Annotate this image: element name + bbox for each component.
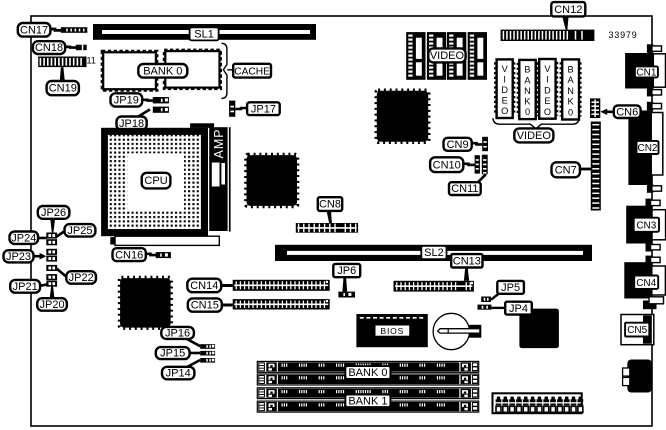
svg-text:B: B [524, 65, 530, 75]
svg-text:0: 0 [568, 108, 573, 118]
svg-text:N: N [567, 86, 574, 96]
svg-text:JP6: JP6 [337, 265, 356, 277]
svg-text:BANK 0: BANK 0 [143, 65, 182, 77]
svg-text:33979: 33979 [609, 30, 638, 40]
svg-text:D: D [501, 85, 508, 95]
svg-text:I: I [546, 75, 549, 85]
svg-text:CN16: CN16 [115, 249, 143, 261]
svg-text:AMP: AMP [212, 128, 226, 158]
svg-text:K: K [524, 97, 531, 107]
svg-text:JP20: JP20 [40, 299, 65, 311]
svg-text:VIDEO: VIDEO [517, 130, 552, 142]
svg-text:CN4: CN4 [636, 278, 656, 289]
svg-text:CN7: CN7 [555, 164, 577, 176]
svg-text:CN13: CN13 [453, 255, 481, 267]
svg-text:VIDEO: VIDEO [430, 50, 465, 62]
svg-text:O: O [544, 107, 551, 117]
svg-text:CN15: CN15 [191, 300, 219, 312]
svg-text:CN17: CN17 [20, 24, 48, 36]
svg-text:0: 0 [525, 107, 530, 117]
svg-text:JP25: JP25 [67, 225, 92, 237]
svg-text:CN2: CN2 [637, 143, 657, 154]
svg-text:E: E [502, 96, 508, 106]
svg-text:CN12: CN12 [554, 4, 582, 16]
svg-text:CN11: CN11 [451, 183, 478, 195]
svg-text:V: V [502, 64, 509, 74]
svg-text:SL2: SL2 [424, 247, 444, 259]
svg-text:O: O [501, 106, 508, 116]
svg-text:BIOS: BIOS [380, 326, 404, 336]
svg-text:BANK 1: BANK 1 [348, 395, 387, 407]
svg-text:A: A [524, 75, 531, 85]
svg-text:CN18: CN18 [35, 42, 63, 54]
svg-text:JP5: JP5 [501, 282, 520, 294]
svg-text:CN6: CN6 [616, 106, 638, 118]
svg-text:CN3: CN3 [636, 220, 656, 231]
svg-text:E: E [544, 96, 550, 106]
svg-text:JP23: JP23 [6, 251, 31, 263]
svg-text:CN19: CN19 [49, 83, 77, 95]
svg-text:JP14: JP14 [166, 368, 191, 380]
svg-text:V: V [544, 64, 551, 74]
svg-text:JP21: JP21 [13, 281, 38, 293]
svg-text:BANK 0: BANK 0 [348, 367, 387, 379]
svg-text:JP26: JP26 [41, 207, 66, 219]
svg-text:JP17: JP17 [251, 103, 276, 115]
svg-text:CN1: CN1 [636, 68, 656, 79]
svg-text:K: K [568, 97, 575, 107]
svg-text:A: A [568, 75, 575, 85]
svg-text:CN8: CN8 [319, 199, 341, 211]
svg-text:D: D [544, 85, 551, 95]
svg-text:SL1: SL1 [194, 29, 214, 41]
svg-text:11: 11 [87, 56, 96, 66]
svg-text:CN14: CN14 [190, 280, 218, 292]
svg-text:N: N [524, 86, 531, 96]
svg-text:B: B [568, 64, 574, 74]
svg-text:JP15: JP15 [160, 348, 185, 360]
svg-text:CN10: CN10 [433, 159, 461, 171]
svg-text:I: I [503, 75, 506, 85]
svg-text:JP19: JP19 [114, 95, 139, 107]
svg-text:CPU: CPU [144, 175, 167, 187]
svg-text:JP16: JP16 [165, 328, 190, 340]
svg-text:CACHE: CACHE [234, 66, 270, 77]
svg-text:JP24: JP24 [11, 232, 36, 244]
svg-text:CN9: CN9 [447, 139, 469, 151]
svg-text:CN5: CN5 [627, 325, 647, 336]
svg-text:JP4: JP4 [509, 303, 528, 315]
svg-text:JP22: JP22 [69, 272, 94, 284]
